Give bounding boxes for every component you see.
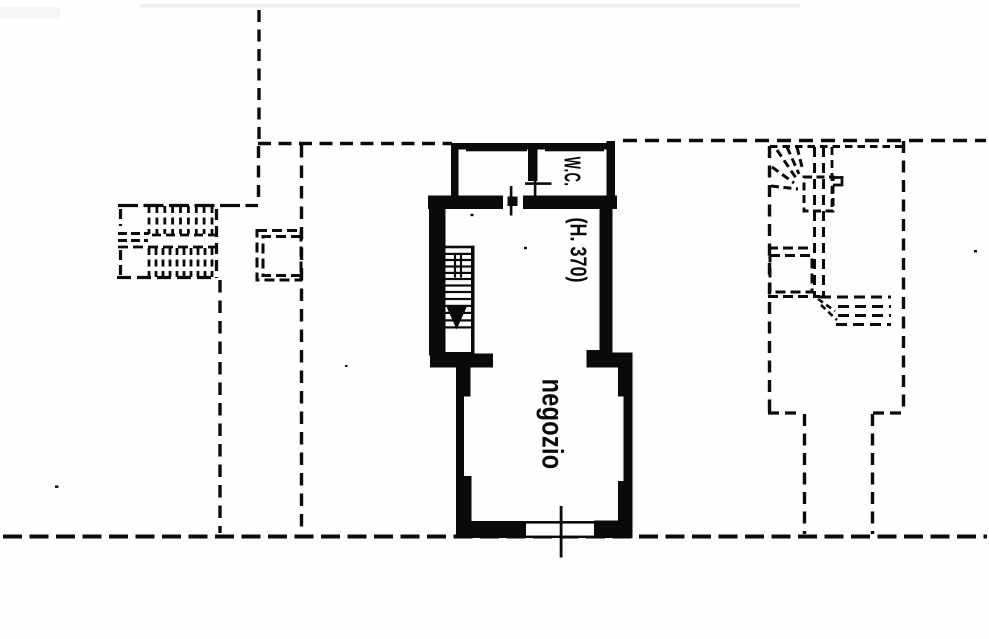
- svg-text:W.C.: W.C.: [558, 157, 584, 187]
- svg-text:negozio: negozio: [536, 379, 569, 470]
- svg-text:(H. 370): (H. 370): [565, 218, 591, 283]
